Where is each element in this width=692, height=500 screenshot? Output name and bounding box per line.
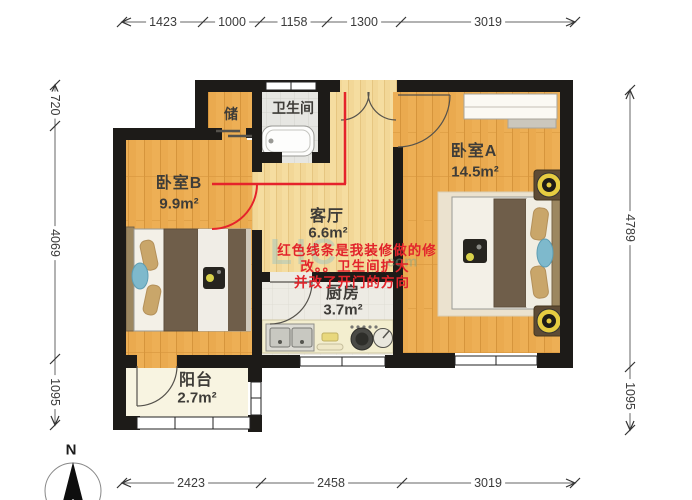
soap-dish-icon <box>322 333 338 341</box>
kitchen-counter <box>262 320 393 353</box>
balcony-area: 2.7m² <box>177 390 216 407</box>
sink-icon <box>266 324 314 351</box>
dim-left-2: 4069 <box>48 226 62 260</box>
dim-top-5: 3019 <box>471 15 505 29</box>
bed-b-icon <box>126 227 251 331</box>
renovation-note-line3: 并改了开门的方向 <box>294 271 410 291</box>
dim-right-1: 4789 <box>623 211 637 245</box>
dim-bottom-1: 2423 <box>174 476 208 490</box>
bathroom-label: 卫生间 <box>272 98 314 118</box>
living-room-label: 客厅 <box>310 202 344 226</box>
cushion-icon <box>537 239 553 267</box>
north-arrow-icon <box>45 462 101 500</box>
kitchen-window <box>300 357 385 366</box>
north-label: N <box>66 442 77 459</box>
bedroom-b-area: 9.9m² <box>159 196 198 213</box>
cushion-icon <box>132 263 148 289</box>
bedroom-a-area: 14.5m² <box>451 164 499 181</box>
floor-plan: LIC .com 卧室B 9.9m² 储 卫生间 客厅 6.6m² 厨房 3.7… <box>0 0 692 500</box>
kitchen-area: 3.7m² <box>323 302 362 319</box>
balcony-bottom-window <box>137 417 250 429</box>
speaker-icon <box>537 173 561 197</box>
dim-right-2: 1095 <box>623 379 637 413</box>
dim-left-3: 1095 <box>48 375 62 409</box>
dim-top-2: 1000 <box>215 15 249 29</box>
tray-icon <box>463 239 487 263</box>
dim-top-3: 1158 <box>278 15 311 29</box>
tv-shelf-icon <box>508 119 556 128</box>
dim-bottom-3: 3019 <box>471 476 505 490</box>
bedroom-a-label: 卧室A <box>451 137 498 161</box>
storage-label: 储 <box>224 104 238 124</box>
speaker-icon <box>537 309 561 333</box>
balcony-label: 阳台 <box>179 366 213 390</box>
dim-left-1: 720 <box>48 92 62 119</box>
dish-tray-icon <box>317 344 343 350</box>
bedroom-a-window <box>455 356 537 365</box>
bathtub-icon <box>262 126 314 156</box>
bed-a-icon <box>452 195 560 311</box>
bathroom-window <box>266 82 316 90</box>
dim-bottom-2: 2458 <box>314 476 348 490</box>
bedroom-b-label: 卧室B <box>156 169 203 193</box>
dim-top-4: 1300 <box>347 15 381 29</box>
balcony-side-window <box>251 382 261 415</box>
dim-top-1: 1423 <box>146 15 180 29</box>
